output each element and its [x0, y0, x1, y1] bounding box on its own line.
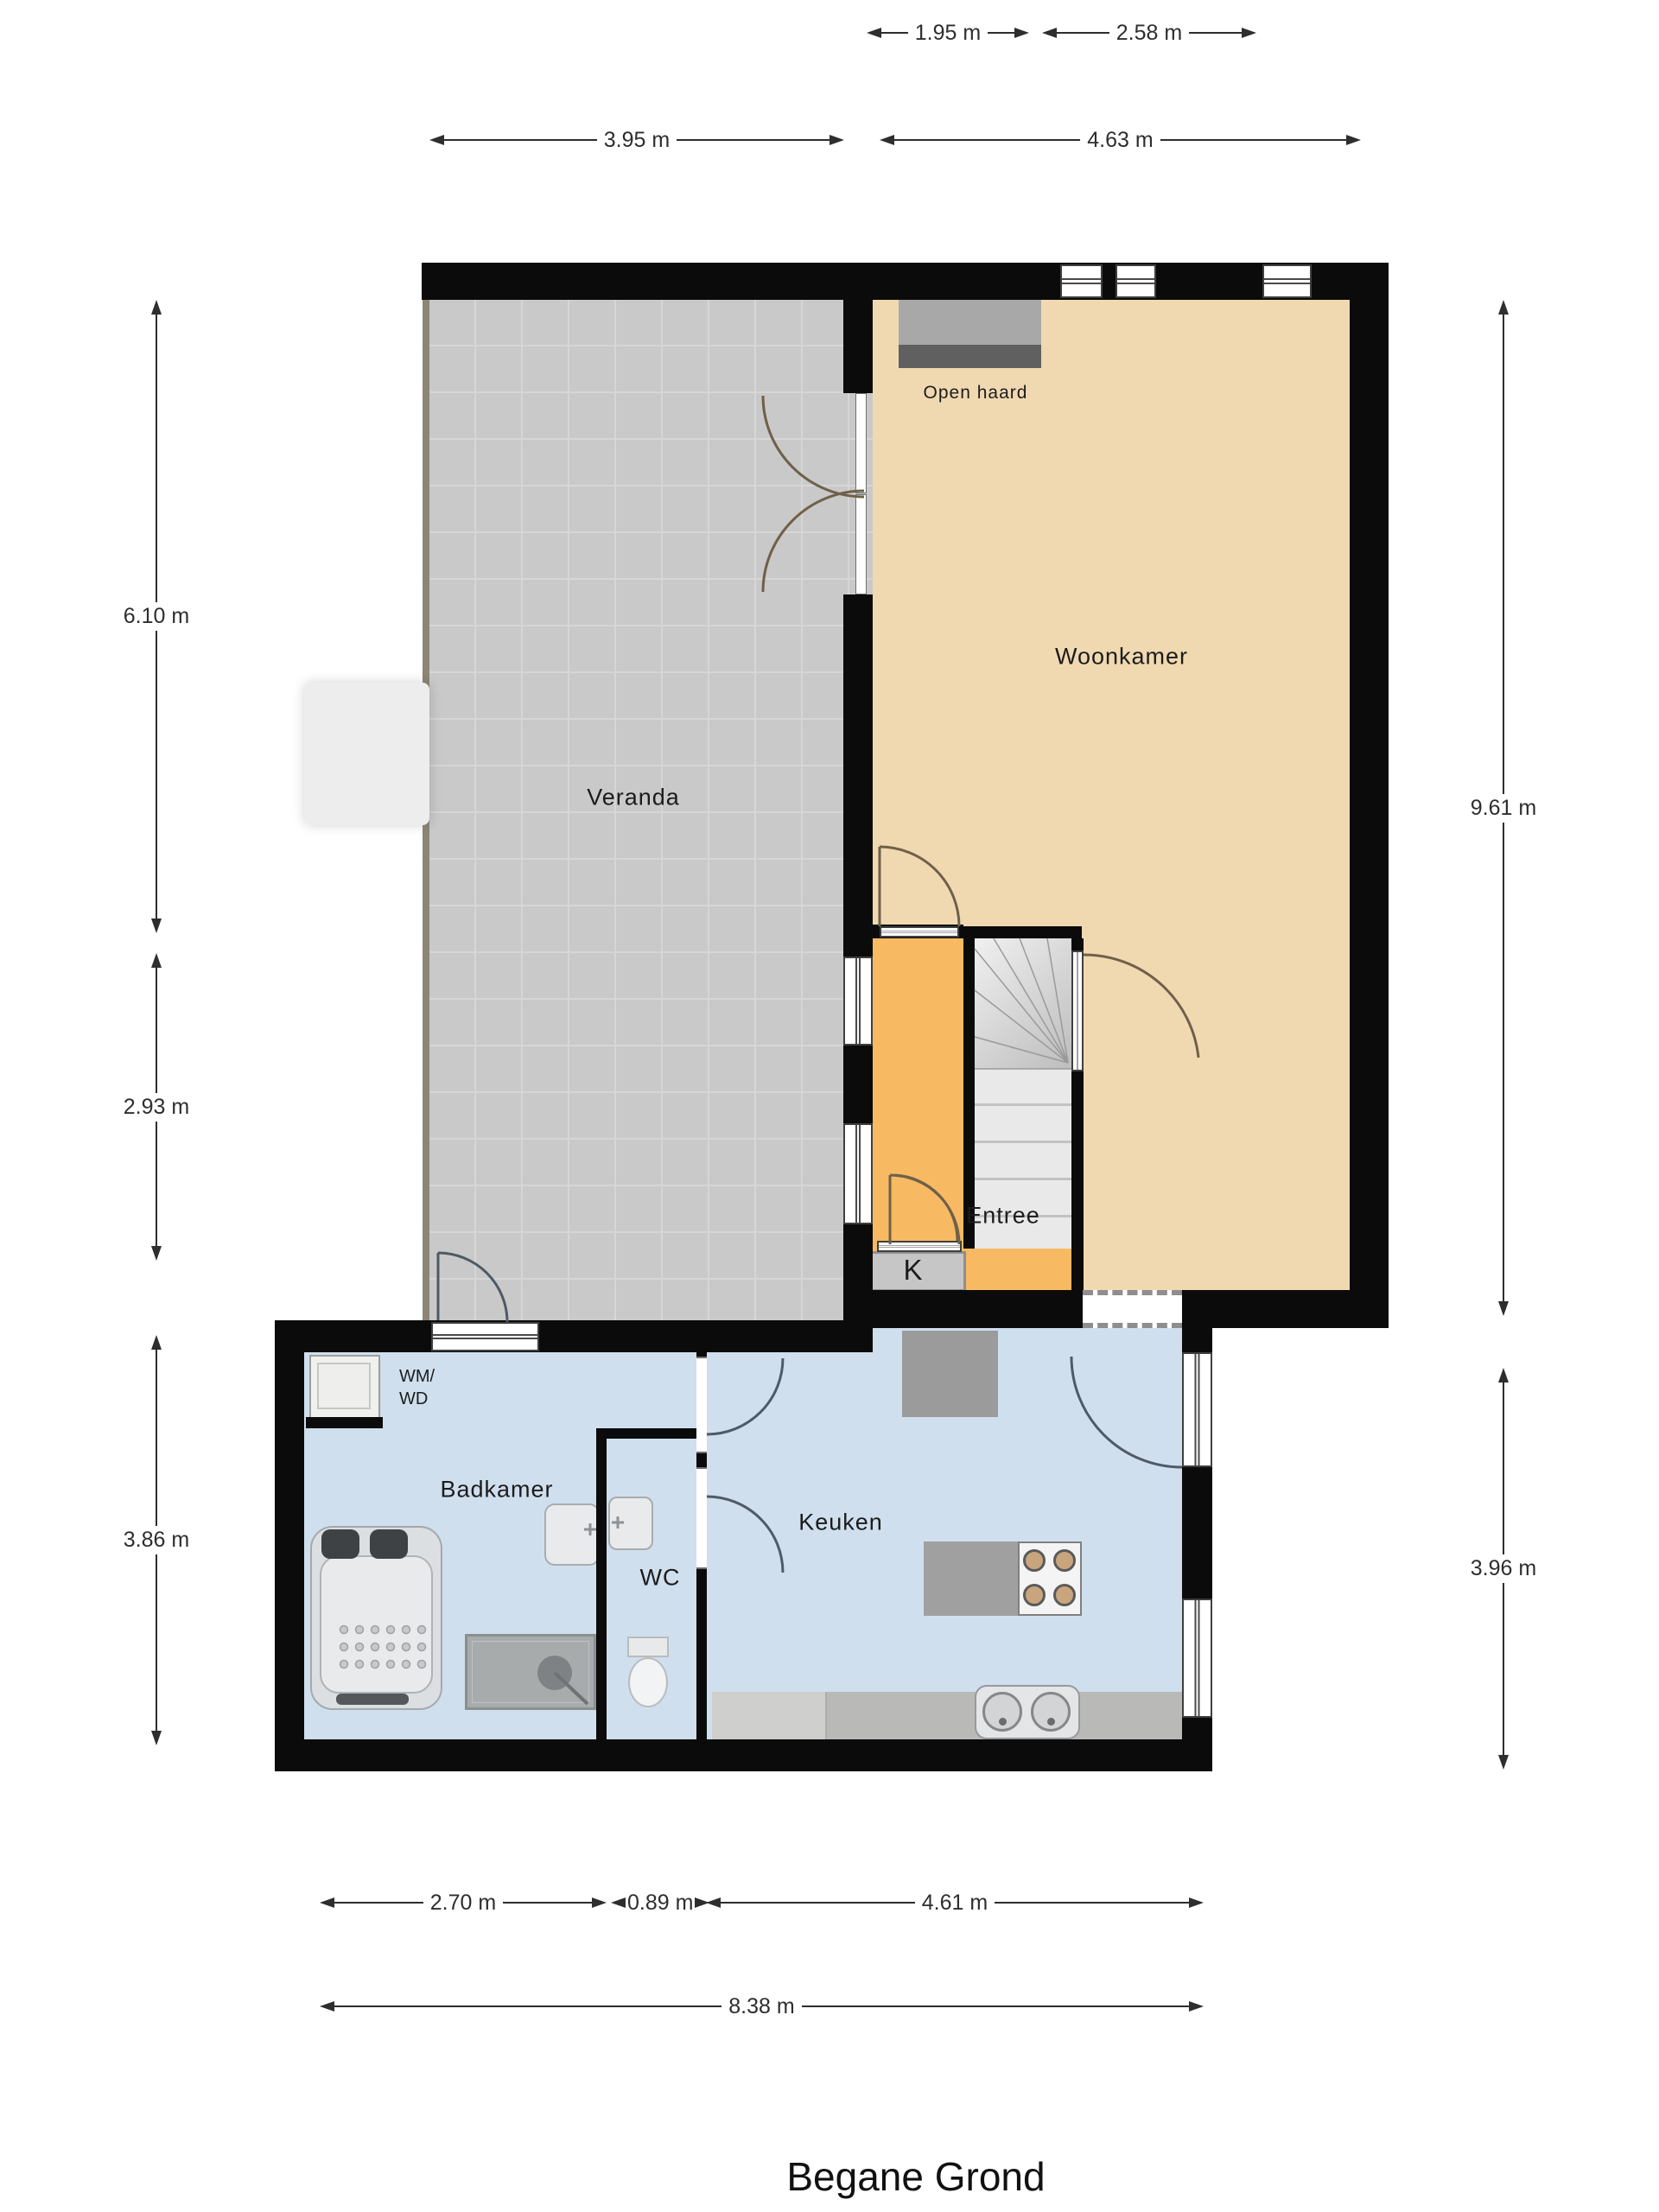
dim-396-label: 3.96 m — [1464, 1554, 1543, 1583]
stairs-winder — [975, 938, 1071, 1069]
dim-463: 4.63 m — [880, 131, 1361, 149]
door-entree-entry — [843, 1123, 873, 1224]
bathtub-headrest-left — [321, 1529, 359, 1559]
dim-195: 1.95 m — [867, 24, 1029, 41]
window-top-3 — [1262, 264, 1312, 298]
dim-610-label: 6.10 m — [117, 602, 196, 631]
dim-610: 6.10 m — [109, 300, 204, 933]
kitchen-cabinet-block — [902, 1331, 998, 1417]
washbasin-wc — [608, 1497, 653, 1550]
veranda-label: Veranda — [587, 785, 680, 811]
door-frame-entree-woonkamer — [880, 926, 959, 938]
dim-258: 2.58 m — [1042, 24, 1256, 41]
window-top-2 — [1116, 264, 1156, 298]
wc-label: WC — [640, 1565, 681, 1592]
wall-stair-top — [963, 926, 1082, 938]
dim-195-label: 1.95 m — [908, 19, 988, 48]
entree-label: Entree — [966, 1203, 1040, 1230]
wm-label-line1: WM/ — [399, 1367, 435, 1386]
dim-838: 8.38 m — [320, 1998, 1204, 2015]
toilet-tank — [627, 1637, 669, 1657]
wall-right-upper — [1350, 263, 1389, 1328]
dim-463-label: 4.63 m — [1080, 126, 1160, 155]
wm-wd-label: WM/ WD — [399, 1365, 435, 1410]
door-veranda-badkamer — [431, 1322, 539, 1351]
sink-drain-left — [999, 1718, 1007, 1726]
bathtub-inner — [320, 1555, 433, 1694]
wm-label-line2: WD — [399, 1389, 428, 1408]
wall-top — [422, 263, 1389, 300]
dim-270: 2.70 m — [320, 1894, 607, 1911]
dim-961-label: 9.61 m — [1464, 794, 1543, 823]
window-keuken-right — [1182, 1599, 1212, 1718]
door-corridor-keuken — [696, 1357, 707, 1453]
dim-089: 0.89 m — [611, 1894, 702, 1911]
dim-293-label: 2.93 m — [117, 1093, 196, 1122]
washbasin-badkamer — [544, 1503, 600, 1566]
wall-divider-d — [843, 1224, 873, 1290]
dim-293: 2.93 m — [109, 953, 204, 1261]
wall-section-left — [275, 1352, 304, 1771]
burner-3 — [1023, 1584, 1046, 1606]
wall-section-top — [275, 1320, 873, 1352]
window-top-1 — [1060, 264, 1103, 298]
dim-961: 9.61 m — [1456, 300, 1551, 1316]
wall-divider-b — [843, 594, 873, 957]
wall-bottom-woonkamer-left — [843, 1290, 1083, 1328]
sink-bowl-left — [982, 1692, 1022, 1732]
bathtub-headrest-right — [370, 1529, 408, 1559]
dim-396: 3.96 m — [1456, 1368, 1551, 1770]
toilet-bowl — [628, 1657, 668, 1707]
burner-1 — [1023, 1549, 1046, 1572]
dim-395: 3.95 m — [429, 131, 844, 149]
passage-dashed-opening — [1083, 1290, 1182, 1328]
sink-bowl-right — [1031, 1692, 1071, 1732]
wall-divider-a — [843, 300, 873, 393]
keuken-label: Keuken — [798, 1510, 883, 1536]
wall-bottom-woonkamer-right — [1182, 1290, 1389, 1328]
dim-270-label: 2.70 m — [423, 1889, 503, 1917]
fireplace-top — [899, 300, 1041, 345]
burner-2 — [1053, 1549, 1076, 1572]
dim-461-label: 4.61 m — [915, 1889, 995, 1917]
wall-divider-c — [843, 1046, 873, 1123]
dim-258-label: 2.58 m — [1109, 19, 1189, 48]
floorplan-canvas: Veranda Woonkamer Open haard Entree K Ba… — [0, 0, 1659, 2212]
dim-386: 3.86 m — [109, 1335, 204, 1745]
shower-drain — [537, 1656, 572, 1690]
wall-wm-stub — [306, 1417, 383, 1428]
veranda-doubledoor-leaf-lower — [855, 494, 867, 594]
washing-machine-inner — [317, 1363, 371, 1409]
woonkamer-label: Woonkamer — [1055, 644, 1188, 671]
bathtub-handle — [336, 1694, 409, 1705]
window-entree-veranda — [843, 957, 873, 1046]
door-wc-keuken — [696, 1467, 707, 1569]
badkamer-label: Badkamer — [440, 1477, 553, 1503]
open-haard-label: Open haard — [924, 383, 1028, 404]
wall-section-bottom — [275, 1739, 1212, 1771]
door-frame-stairs-woonkamer — [1071, 950, 1084, 1071]
door-keuken-exterior — [1182, 1352, 1212, 1467]
dim-838-label: 8.38 m — [721, 1993, 801, 2021]
veranda-doubledoor-leaf-upper — [855, 393, 867, 493]
dim-461: 4.61 m — [706, 1894, 1204, 1911]
outside-step — [304, 683, 429, 825]
wall-wc-top — [596, 1428, 696, 1439]
dim-395-label: 3.95 m — [597, 126, 677, 155]
dim-386-label: 3.86 m — [117, 1526, 196, 1554]
kitchen-counter-cabinet — [712, 1692, 827, 1739]
burner-4 — [1053, 1584, 1076, 1606]
dim-089-label: 0.89 m — [626, 1889, 695, 1917]
sink-drain-right — [1047, 1718, 1055, 1726]
wall-wc-left — [596, 1439, 607, 1739]
closet-k-label: K — [903, 1254, 923, 1287]
door-frame-closet — [877, 1241, 962, 1252]
fireplace-hearth — [899, 345, 1041, 368]
page-title: Begane Grond — [173, 2153, 1659, 2200]
